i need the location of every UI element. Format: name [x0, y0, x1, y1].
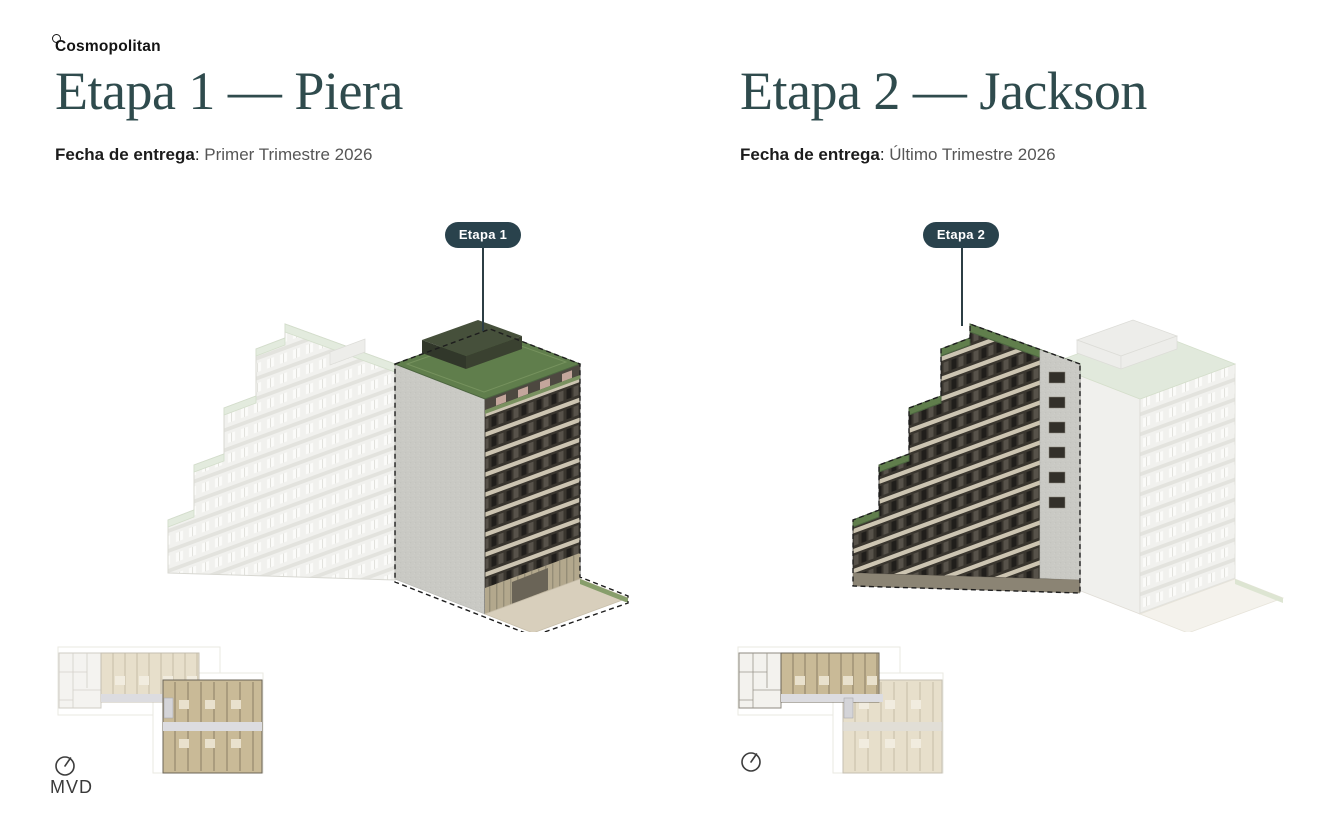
etapa-1-leader-line	[482, 247, 484, 331]
delivery-value: Último Trimestre 2026	[889, 145, 1055, 164]
highlighted-building-jackson	[853, 324, 1080, 593]
phase-panel-etapa-1: Etapa 1 — Piera Fecha de entrega: Primer…	[55, 60, 675, 165]
phase-1-title: Etapa 1 — Piera	[55, 60, 675, 124]
highlighted-building-piera	[395, 320, 628, 632]
floorplan-etapa-2	[735, 642, 947, 778]
building-isometric-etapa-1	[160, 272, 635, 632]
ghost-building-jackson	[168, 324, 395, 580]
page: Cosmopolitan Etapa 1 — Piera Fecha de en…	[0, 0, 1320, 818]
floorplan-etapa-1	[55, 642, 267, 778]
etapa-1-badge: Etapa 1	[445, 222, 521, 248]
ghost-building-piera	[1050, 320, 1283, 632]
compass-icon	[52, 753, 78, 779]
delivery-label: Fecha de entrega	[740, 145, 880, 164]
delivery-separator: :	[880, 145, 889, 164]
etapa-2-badge: Etapa 2	[923, 222, 999, 248]
floorplan-rooms-faded	[59, 653, 101, 708]
phase-panel-etapa-2: Etapa 2 — Jackson Fecha de entrega: Últi…	[740, 60, 1300, 165]
floorplan-rooms-highlighted	[739, 653, 781, 708]
etapa-2-leader-line	[961, 247, 963, 326]
floorplan-block-highlighted	[163, 680, 262, 773]
compass-icon	[738, 749, 764, 775]
delivery-value: Primer Trimestre 2026	[204, 145, 372, 164]
phase-1-delivery: Fecha de entrega: Primer Trimestre 2026	[55, 145, 675, 165]
map-label-mvd: MVD	[50, 777, 93, 798]
building-isometric-etapa-2	[845, 272, 1305, 632]
phase-2-title: Etapa 2 — Jackson	[740, 60, 1300, 124]
delivery-separator: :	[195, 145, 204, 164]
brand-logo-text: Cosmopolitan	[55, 38, 161, 55]
brand-logo: Cosmopolitan	[55, 38, 161, 56]
phase-2-delivery: Fecha de entrega: Último Trimestre 2026	[740, 145, 1300, 165]
logo-ring-icon	[52, 34, 61, 43]
delivery-label: Fecha de entrega	[55, 145, 195, 164]
